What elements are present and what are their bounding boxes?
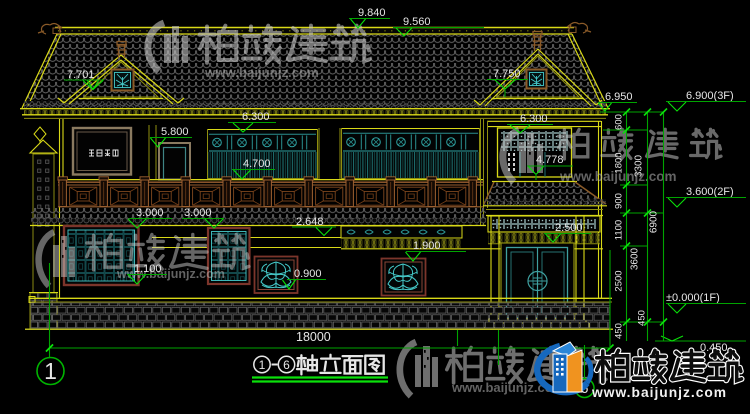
svg-text:450: 450: [614, 323, 625, 339]
svg-text:www.baijunjz.com: www.baijunjz.com: [591, 385, 727, 400]
svg-text:6.950: 6.950: [605, 91, 633, 103]
svg-text:900: 900: [614, 193, 625, 209]
svg-text:2.500: 2.500: [555, 222, 583, 234]
svg-text:2500: 2500: [614, 270, 625, 291]
svg-text:4.778: 4.778: [536, 154, 564, 166]
svg-text:1.100: 1.100: [134, 263, 162, 275]
svg-text:1: 1: [44, 358, 57, 384]
svg-text:450: 450: [637, 310, 648, 326]
svg-text:1100: 1100: [614, 220, 625, 240]
svg-text:6.900(3F): 6.900(3F): [686, 90, 734, 102]
svg-text:7.701: 7.701: [67, 69, 95, 81]
svg-text:18000: 18000: [296, 330, 331, 344]
svg-text:9.840: 9.840: [358, 7, 386, 19]
svg-text:6.300: 6.300: [520, 113, 548, 125]
svg-text:5.800: 5.800: [161, 126, 189, 138]
svg-text:7.750: 7.750: [493, 68, 521, 80]
svg-text:3.000: 3.000: [136, 207, 164, 219]
svg-text:6.300: 6.300: [242, 111, 270, 123]
svg-text:1.900: 1.900: [413, 240, 441, 252]
svg-text:6: 6: [283, 358, 290, 372]
svg-text:3.600(2F): 3.600(2F): [686, 186, 734, 198]
svg-text:6900: 6900: [649, 210, 660, 233]
svg-text:±0.000(1F): ±0.000(1F): [666, 292, 720, 304]
svg-text:3600: 3600: [630, 247, 641, 270]
svg-text:www.baijunjz.com: www.baijunjz.com: [204, 65, 319, 80]
svg-text:9.560: 9.560: [403, 16, 431, 28]
svg-text:3.000: 3.000: [184, 207, 212, 219]
svg-text:1800: 1800: [614, 152, 625, 173]
svg-text:2.648: 2.648: [296, 216, 324, 228]
svg-text:1: 1: [259, 358, 266, 372]
svg-text:0.900: 0.900: [294, 268, 322, 280]
svg-text:3300: 3300: [634, 154, 645, 177]
svg-text:4.700: 4.700: [243, 158, 271, 170]
svg-text:600: 600: [614, 114, 625, 130]
